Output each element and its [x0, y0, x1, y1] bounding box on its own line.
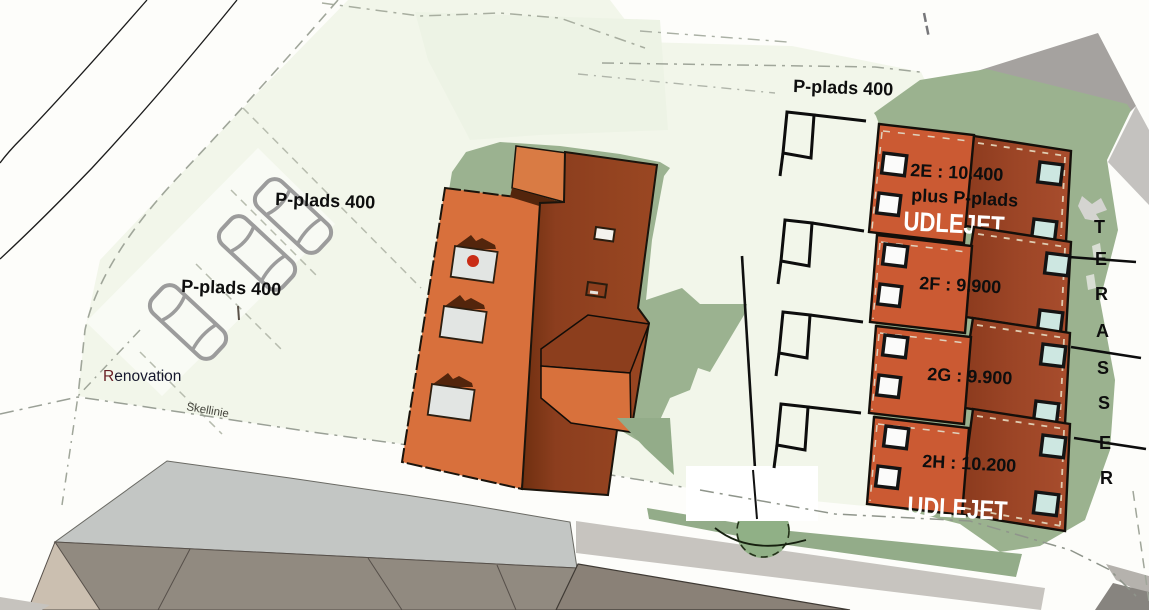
svg-text:E: E	[1099, 433, 1111, 453]
svg-text:T: T	[1094, 217, 1105, 237]
svg-text:P-plads 400: P-plads 400	[275, 189, 376, 212]
svg-text:E: E	[1095, 249, 1107, 269]
svg-text:S: S	[1097, 358, 1109, 378]
svg-text:P-plads 400: P-plads 400	[793, 76, 894, 99]
svg-text:UDLEJET: UDLEJET	[907, 491, 1009, 526]
svg-text:Renovation: Renovation	[103, 368, 181, 385]
svg-text:A: A	[1096, 321, 1109, 341]
svg-text:S: S	[1098, 393, 1110, 413]
svg-text:R: R	[1095, 284, 1108, 304]
svg-text:R: R	[1100, 468, 1113, 488]
svg-text:P-plads 400: P-plads 400	[181, 276, 282, 299]
